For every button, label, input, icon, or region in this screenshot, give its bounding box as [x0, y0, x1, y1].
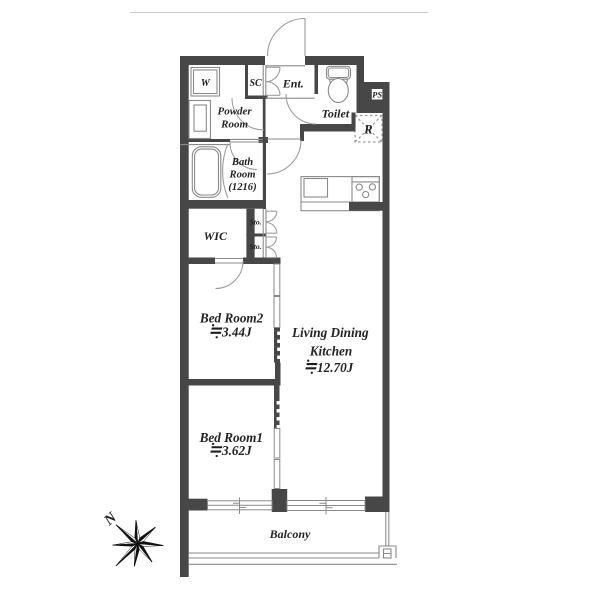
svg-text:Bed Room2: Bed Room2: [199, 310, 264, 325]
svg-text:Sto.: Sto.: [249, 242, 261, 251]
svg-text:WIC: WIC: [204, 229, 228, 243]
svg-text:SC: SC: [249, 78, 262, 89]
svg-text:R: R: [363, 123, 372, 137]
svg-text:(1216): (1216): [228, 182, 256, 193]
svg-text:PS: PS: [372, 90, 382, 100]
svg-text:W: W: [201, 78, 211, 89]
svg-text:Room: Room: [229, 170, 256, 181]
svg-text:Powder: Powder: [217, 106, 252, 118]
svg-text:Kitchen: Kitchen: [309, 344, 353, 359]
svg-text:Living Dining: Living Dining: [291, 325, 369, 340]
svg-text:Balcony: Balcony: [269, 527, 311, 541]
svg-text:Room: Room: [220, 119, 248, 131]
svg-text:12.70J: 12.70J: [317, 360, 354, 375]
svg-text:3.62J: 3.62J: [221, 443, 252, 458]
svg-text:Toilet: Toilet: [322, 107, 350, 121]
svg-text:Sto.: Sto.: [249, 218, 261, 227]
svg-text:3.44J: 3.44J: [221, 325, 252, 340]
svg-text:Bath: Bath: [231, 157, 253, 168]
svg-text:Ent.: Ent.: [282, 77, 304, 91]
